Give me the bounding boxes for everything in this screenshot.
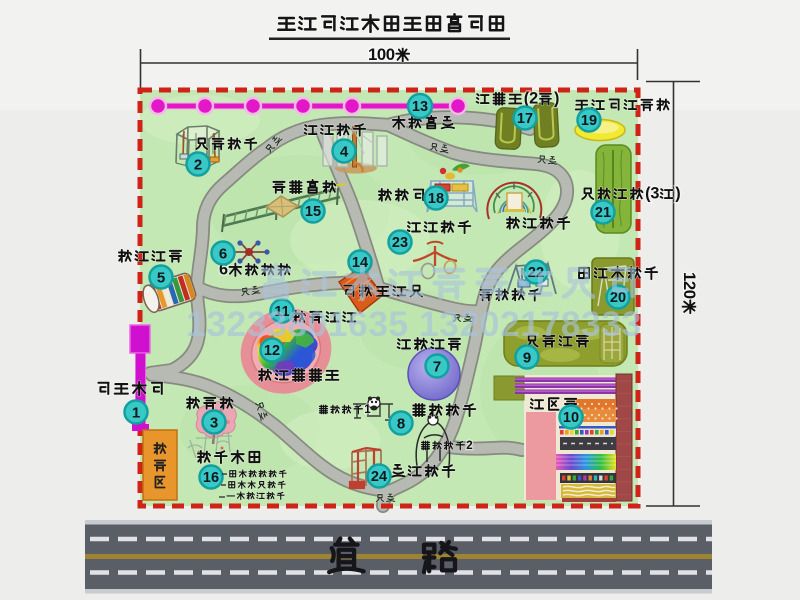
svg-text:18: 18 xyxy=(428,191,444,207)
svg-text:1: 1 xyxy=(132,404,140,421)
svg-text:): ) xyxy=(554,89,559,107)
svg-text:9: 9 xyxy=(523,349,531,366)
svg-text:0: 0 xyxy=(680,290,699,299)
svg-text:2: 2 xyxy=(194,156,202,173)
svg-text:21: 21 xyxy=(595,205,611,221)
svg-text:8: 8 xyxy=(397,415,405,432)
svg-text:17: 17 xyxy=(517,111,533,127)
svg-text:23: 23 xyxy=(392,235,408,251)
svg-text:): ) xyxy=(675,184,680,202)
svg-text:2: 2 xyxy=(529,89,538,107)
svg-text:5: 5 xyxy=(157,269,165,286)
svg-text:3: 3 xyxy=(650,184,659,202)
svg-text:4: 4 xyxy=(340,143,349,160)
svg-text:13: 13 xyxy=(412,99,428,115)
svg-text:1: 1 xyxy=(364,403,371,416)
svg-text:6: 6 xyxy=(219,245,227,262)
svg-text:10: 10 xyxy=(563,410,579,426)
svg-text:7: 7 xyxy=(433,358,441,375)
svg-text:19: 19 xyxy=(581,113,597,129)
svg-text:13233801635 13202178333: 13233801635 13202178333 xyxy=(186,304,642,344)
svg-text:12: 12 xyxy=(264,343,280,359)
svg-text:24: 24 xyxy=(371,469,387,485)
svg-text:16: 16 xyxy=(203,470,219,486)
svg-text:2: 2 xyxy=(466,439,472,452)
svg-text:0: 0 xyxy=(386,45,395,64)
svg-text:3: 3 xyxy=(210,414,218,431)
svg-text:15: 15 xyxy=(305,204,321,220)
